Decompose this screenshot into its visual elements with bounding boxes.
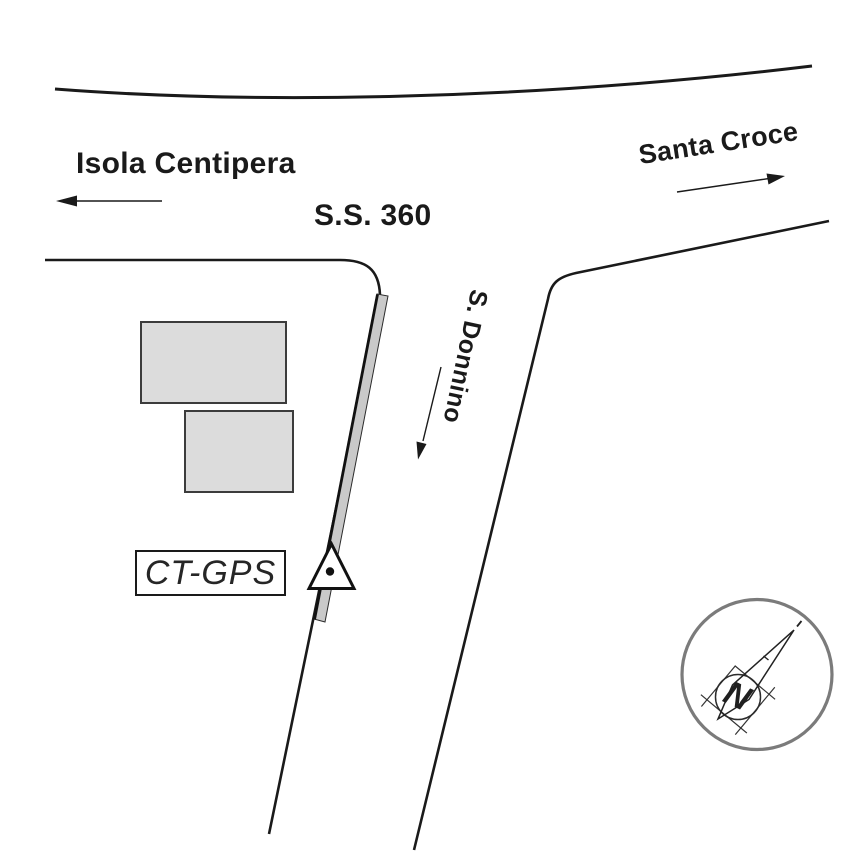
ct-gps-label-box: CT-GPS — [135, 550, 286, 596]
arrow-west-icon — [56, 196, 162, 207]
compass-tip-dash — [797, 621, 802, 627]
building-1 — [141, 322, 286, 403]
label-ss360: S.S. 360 — [314, 199, 431, 233]
station-dot — [326, 567, 334, 575]
station-triangle — [309, 544, 354, 589]
triangle-dot-station-icon — [309, 544, 354, 589]
compass-outer-ring — [682, 600, 832, 750]
compass-rose-icon — [682, 600, 832, 750]
arrow-east-icon — [677, 174, 785, 193]
compass-needle-tick — [764, 656, 769, 660]
map-canvas: Isola Centipera S.S. 360 Santa Croce S. … — [0, 0, 866, 866]
label-isola-centipera: Isola Centipera — [76, 147, 296, 181]
road-ss360-north-edge — [55, 66, 812, 98]
building-2 — [185, 411, 293, 492]
ct-gps-label: CT-GPS — [145, 556, 276, 590]
